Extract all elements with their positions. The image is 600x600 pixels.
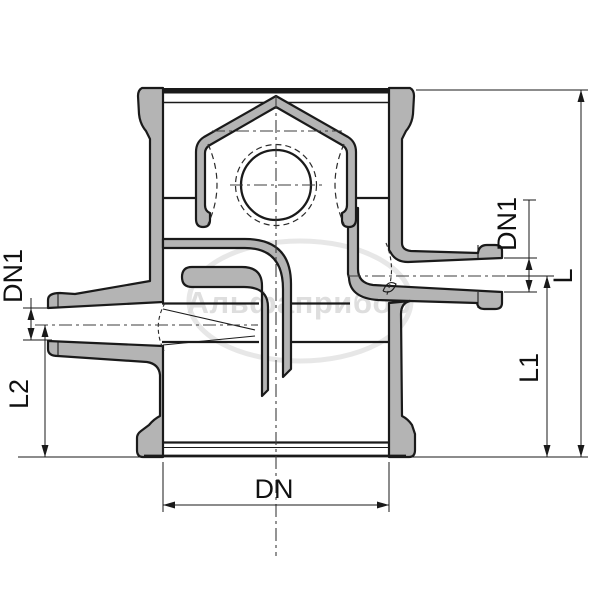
internal-elbow-inner-wall (182, 267, 268, 396)
l1-arrow-bottom (544, 445, 551, 457)
wall-right-upper-with-port-top (389, 88, 502, 262)
top-cover-plate (161, 88, 389, 94)
dimension-label-dn: DN (255, 474, 294, 504)
l2-arrow-top (42, 325, 49, 337)
dn1r-arrow-bottom (526, 280, 533, 292)
wall-left-upper-with-port-top (48, 88, 163, 308)
valve-body (48, 88, 502, 457)
dimension-label-l1: L1 (514, 353, 544, 383)
dimension-label-dn1-left: DN1 (0, 249, 28, 303)
l2-arrow-bottom (42, 445, 49, 457)
wall-left-lower-with-port-bottom (48, 341, 163, 457)
dn1l-arrow-bottom (28, 328, 35, 340)
technical-drawing-page: Альфаприбор (0, 0, 600, 600)
dn-arrow-left (163, 502, 175, 509)
wall-right-lower (389, 301, 415, 457)
l-arrow-bottom (578, 445, 585, 457)
valve-body-section-drawing: Альфаприбор (0, 0, 600, 600)
dimension-label-dn1-right: DN1 (492, 197, 522, 251)
dimension-label-l2: L2 (4, 379, 34, 409)
l-arrow-top (578, 90, 585, 102)
dn1l-arrow-top (28, 308, 35, 320)
port-root-arc-left (158, 303, 165, 351)
dn1r-arrow-top (526, 258, 533, 270)
dn-arrow-right (377, 502, 389, 509)
